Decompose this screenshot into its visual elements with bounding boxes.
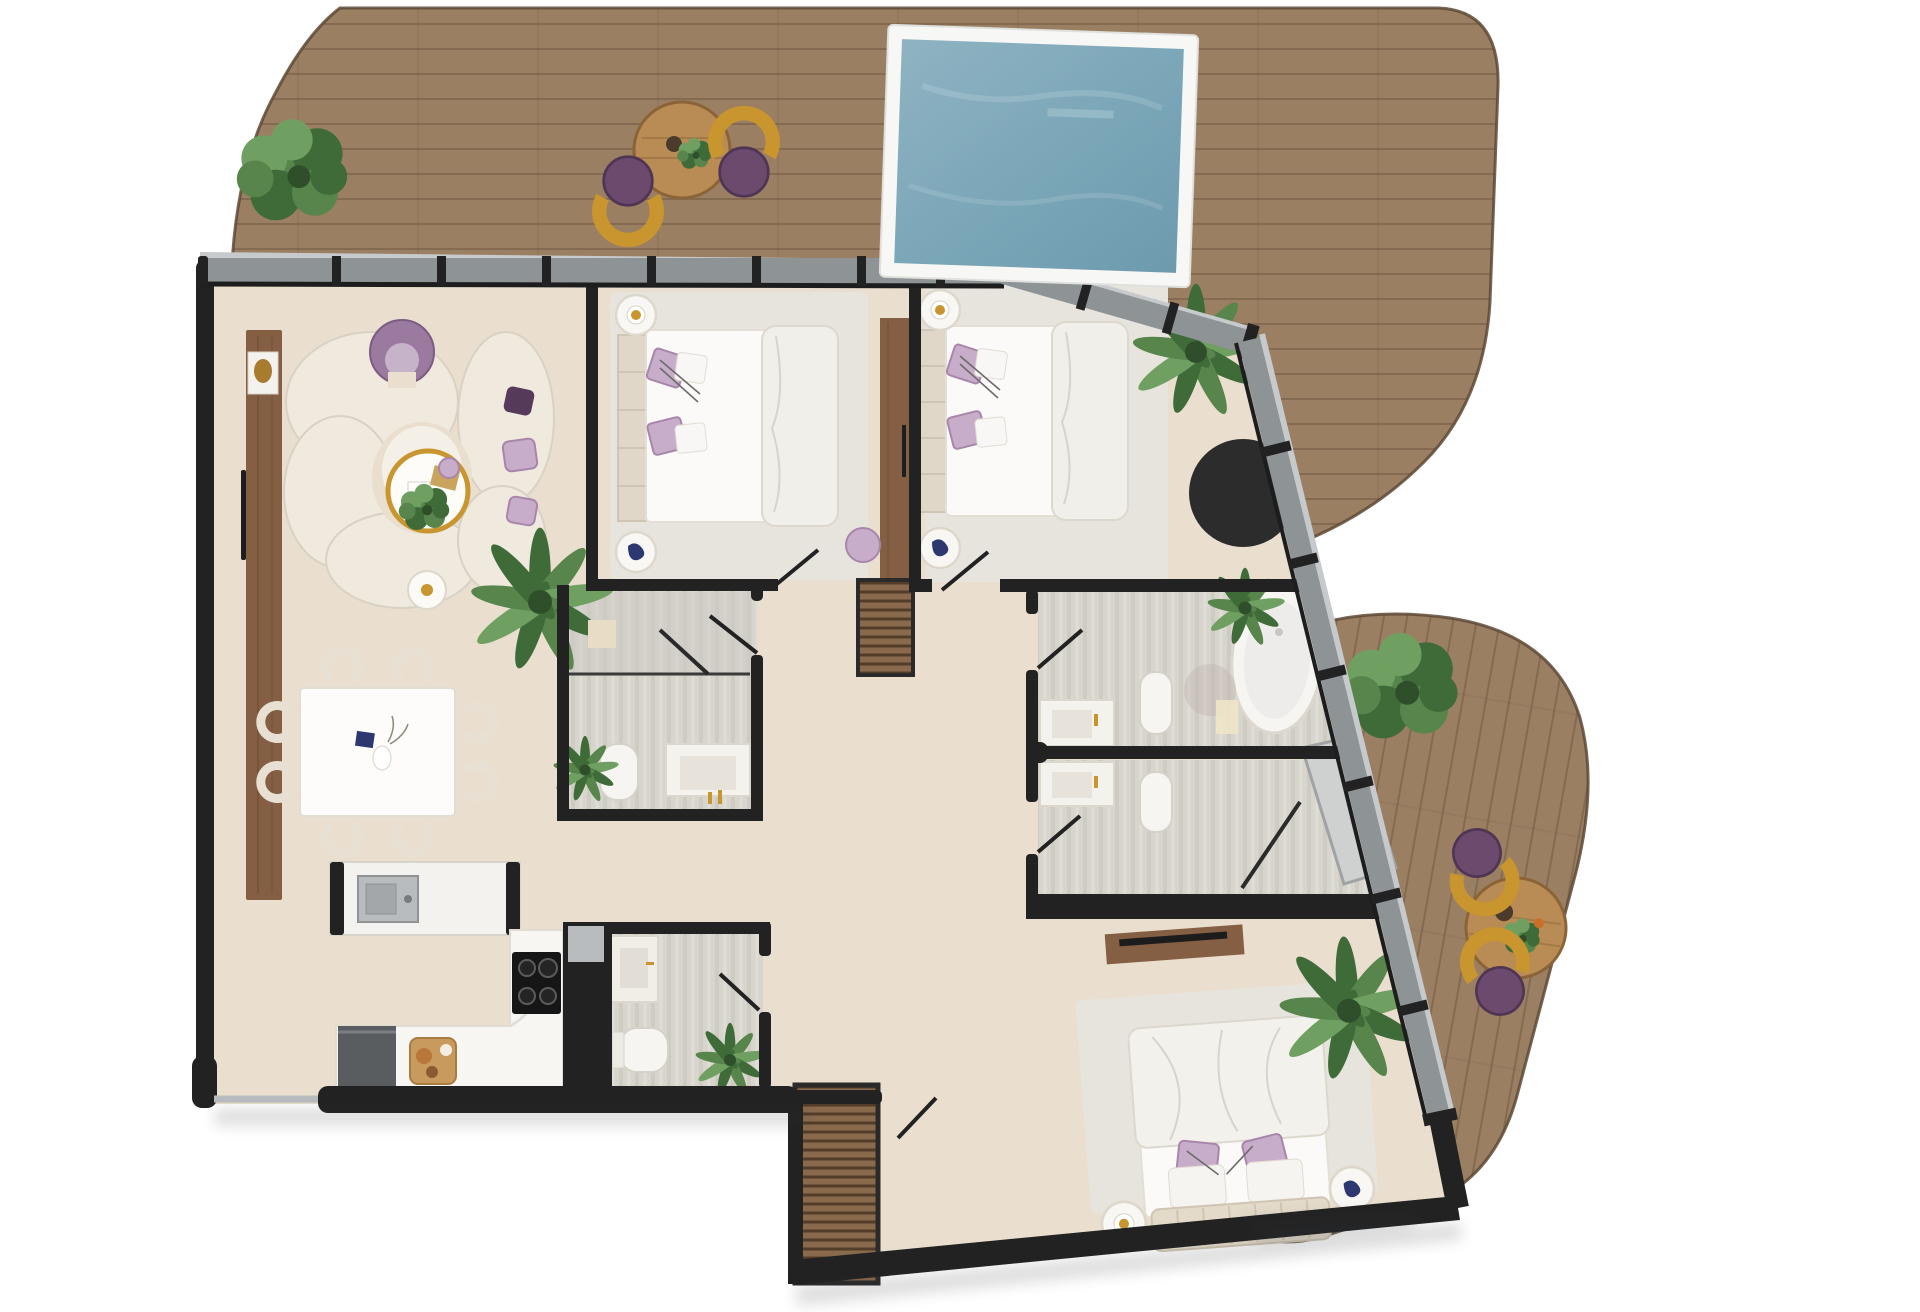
sideboard-console xyxy=(241,330,282,900)
cutting-board xyxy=(410,1038,456,1084)
coffee-table xyxy=(388,451,468,531)
toilet xyxy=(600,744,638,800)
toilet xyxy=(1140,772,1172,832)
island-with-sink xyxy=(330,862,520,935)
double-bed xyxy=(918,322,1128,520)
floor-plan xyxy=(0,0,1920,1312)
swimming-pool xyxy=(880,25,1199,288)
bath-mat xyxy=(588,620,616,648)
toilet-tank xyxy=(612,1032,624,1068)
vanity xyxy=(1040,762,1114,806)
threshold xyxy=(568,926,604,962)
pouf xyxy=(846,528,880,562)
base-cabinet xyxy=(338,1026,396,1088)
side-table xyxy=(408,571,446,609)
vanity xyxy=(666,744,750,804)
tv-wall xyxy=(1026,894,1390,919)
teapot xyxy=(439,458,459,478)
shrub xyxy=(237,119,347,220)
slatted-dresser xyxy=(858,580,913,675)
toilet xyxy=(620,1028,668,1072)
vanity xyxy=(1040,700,1114,746)
toilet xyxy=(1140,672,1172,734)
left-wall xyxy=(196,260,214,1106)
double-bed xyxy=(618,326,838,526)
apartment-unit xyxy=(192,255,1460,1285)
bedroom-1 xyxy=(610,292,909,582)
pool-water xyxy=(894,39,1184,273)
cooktop xyxy=(512,952,561,1014)
floor-plan-canvas xyxy=(0,0,1920,1312)
bath-mat xyxy=(1216,700,1238,734)
vanity xyxy=(610,936,658,1002)
